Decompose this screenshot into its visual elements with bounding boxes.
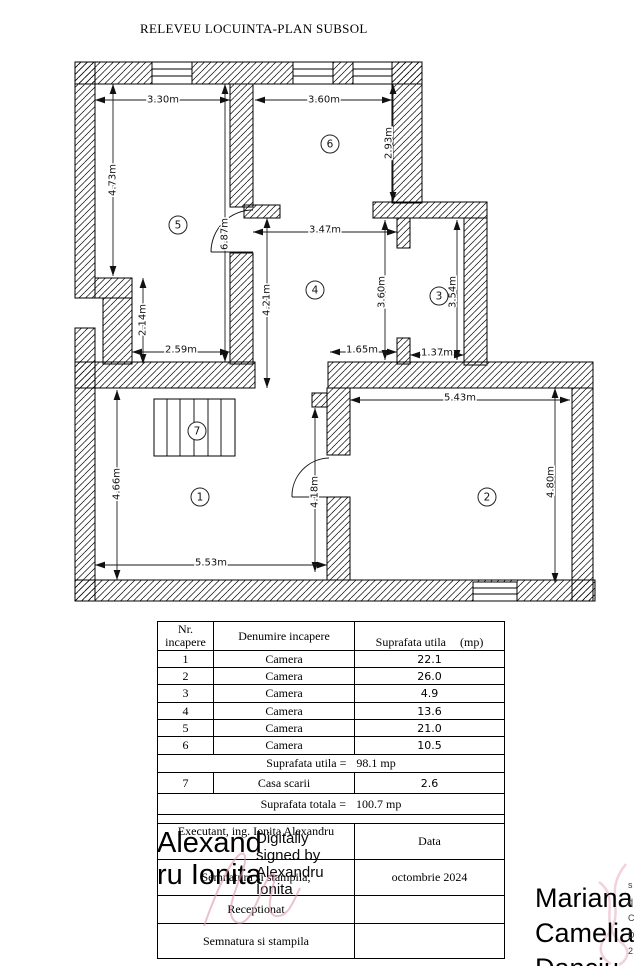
cell-name: Camera xyxy=(214,651,355,668)
subtotal-row: Suprafata utila =98.1 mp xyxy=(158,755,505,773)
cell-nr: 2 xyxy=(158,668,214,685)
stamp-signer-name: Mariana Camelia Danciu xyxy=(535,881,634,966)
dim-step-height: 2.14m xyxy=(138,304,149,336)
cell-nr: 1 xyxy=(158,651,214,668)
subtotal-label: Suprafata utila = xyxy=(266,756,346,770)
stamp-name-line2: Camelia xyxy=(535,916,634,951)
table-row: 3 Camera 4.9 xyxy=(158,685,505,703)
window-icon xyxy=(353,62,392,84)
header-suprafata-label: Suprafata utila xyxy=(376,635,446,649)
spacer-cell xyxy=(158,815,505,824)
cell-nr: 5 xyxy=(158,720,214,737)
wall-segment xyxy=(572,388,593,601)
wall-segment xyxy=(244,205,280,218)
dim-room3-height: 3.54m xyxy=(448,276,459,308)
cell-area: 13.6 xyxy=(355,703,505,720)
table-header-row: Nr. incapere Denumire incapere Suprafata… xyxy=(158,622,505,651)
cell-nr: 3 xyxy=(158,685,214,703)
document-page: RELEVEU LOCUINTA-PLAN SUBSOL xyxy=(0,0,636,966)
window-icon xyxy=(473,582,517,601)
wall-segment xyxy=(392,62,422,203)
header-suprafata: Suprafata utila(mp) xyxy=(355,622,505,651)
room-marker-5: 5 xyxy=(169,216,187,234)
wall-segment xyxy=(75,362,255,388)
svg-text:1: 1 xyxy=(197,492,204,504)
stamp-fragment: 2 xyxy=(628,943,635,960)
svg-text:3: 3 xyxy=(436,291,443,303)
wall-segment xyxy=(373,202,487,218)
wall-segment xyxy=(464,218,487,365)
cell-name: Camera xyxy=(214,737,355,755)
stamp-fragment: C xyxy=(628,910,635,927)
dim-room2-height: 4.80m xyxy=(546,466,557,498)
dim-room2-width: 5.43m xyxy=(444,393,476,404)
dim-room1-width: 5.53m xyxy=(195,558,227,569)
total-cell: Suprafata totala =100.7 mp xyxy=(158,794,505,815)
cell-area: 4.9 xyxy=(355,685,505,703)
cell-area: 21.0 xyxy=(355,720,505,737)
semnatura2-empty-cell xyxy=(355,924,505,959)
receptionat-empty-cell xyxy=(355,896,505,924)
spacer-row xyxy=(158,815,505,824)
cell-area: 22.1 xyxy=(355,651,505,668)
stamp-fragment: s xyxy=(628,877,635,894)
svg-text:7: 7 xyxy=(194,426,201,438)
window-icon xyxy=(293,62,333,84)
table-row: 5 Camera 21.0 xyxy=(158,720,505,737)
stamp-clipped-text: s d C D 2 xyxy=(628,877,635,960)
table-row: 7 Casa scarii 2.6 xyxy=(158,773,505,794)
wall-segment xyxy=(397,338,410,364)
dim-room6-width: 3.60m xyxy=(308,95,340,106)
dim-room1-height: 4.66m xyxy=(112,468,123,500)
handwritten-signature-icon xyxy=(196,838,306,943)
svg-text:6: 6 xyxy=(327,139,334,151)
header-denumire: Denumire incapere xyxy=(214,622,355,651)
cell-area: 2.6 xyxy=(355,773,505,794)
table-row: 1 Camera 22.1 xyxy=(158,651,505,668)
stamp-name-line3: Danciu xyxy=(535,951,634,966)
room-marker-7: 7 xyxy=(188,422,206,440)
dim-room4-height: 4.21m xyxy=(262,284,273,316)
cell-nr: 6 xyxy=(158,737,214,755)
dim-hall-height: 6.87m xyxy=(220,218,231,250)
cell-name: Camera xyxy=(214,685,355,703)
cell-name: Camera xyxy=(214,668,355,685)
wall-segment xyxy=(230,84,253,207)
cell-nr: 7 xyxy=(158,773,214,794)
room-marker-1: 1 xyxy=(191,488,209,506)
table-row: 2 Camera 26.0 xyxy=(158,668,505,685)
total-row: Suprafata totala =100.7 mp xyxy=(158,794,505,815)
cell-area: 10.5 xyxy=(355,737,505,755)
cell-area: 26.0 xyxy=(355,668,505,685)
stamp-fragment: d xyxy=(628,894,635,911)
cell-name: Camera xyxy=(214,703,355,720)
room-marker-6: 6 xyxy=(321,135,339,153)
dim-room4-height-right: 3.60m xyxy=(377,276,388,308)
wall-segment xyxy=(327,497,350,580)
dim-room6-height: 2.93m xyxy=(384,127,395,159)
table-row: 6 Camera 10.5 xyxy=(158,737,505,755)
total-label: Suprafata totala = xyxy=(261,797,346,811)
svg-text:2: 2 xyxy=(484,492,491,504)
wall-segment xyxy=(397,218,410,248)
stamp-name-line1: Mariana xyxy=(535,881,634,916)
cell-name: Casa scarii xyxy=(214,773,355,794)
cell-name: Camera xyxy=(214,720,355,737)
window-icon xyxy=(152,62,192,84)
wall-segment xyxy=(230,253,253,364)
svg-text:5: 5 xyxy=(175,220,182,232)
svg-text:4: 4 xyxy=(312,285,319,297)
wall-segment xyxy=(95,278,132,298)
floor-plan: 3.30m 3.60m 4.73m 2.93m 6.87m 3.47m 4.21… xyxy=(0,0,636,612)
room-marker-2: 2 xyxy=(478,488,496,506)
date-value: octombrie 2024 xyxy=(355,860,505,896)
dim-passage-width: 1.65m xyxy=(346,345,378,356)
table-row: 4 Camera 13.6 xyxy=(158,703,505,720)
dim-room5-height: 4.73m xyxy=(108,164,119,196)
subtotal-cell: Suprafata utila =98.1 mp xyxy=(158,755,505,773)
header-suprafata-unit: (mp) xyxy=(460,635,483,649)
data-label: Data xyxy=(355,824,505,860)
wall-segment xyxy=(328,362,593,388)
total-value: 100.7 mp xyxy=(356,797,401,811)
wall-segment xyxy=(312,393,327,407)
dim-room5-lower-width: 2.59m xyxy=(165,345,197,356)
dim-room5-width: 3.30m xyxy=(147,95,179,106)
dim-room3-width: 1.37m xyxy=(421,348,453,359)
header-nr: Nr. incapere xyxy=(158,622,214,651)
cell-nr: 4 xyxy=(158,703,214,720)
dim-door-wall-height: 4.18m xyxy=(310,476,321,508)
subtotal-value: 98.1 mp xyxy=(356,756,395,770)
stamp-fragment: D xyxy=(628,927,635,944)
wall-segment xyxy=(103,298,132,364)
wall-segment xyxy=(327,388,350,455)
wall-segment xyxy=(75,62,95,298)
dim-room4-width: 3.47m xyxy=(309,225,341,236)
room-marker-3: 3 xyxy=(430,287,448,305)
room-marker-4: 4 xyxy=(306,281,324,299)
